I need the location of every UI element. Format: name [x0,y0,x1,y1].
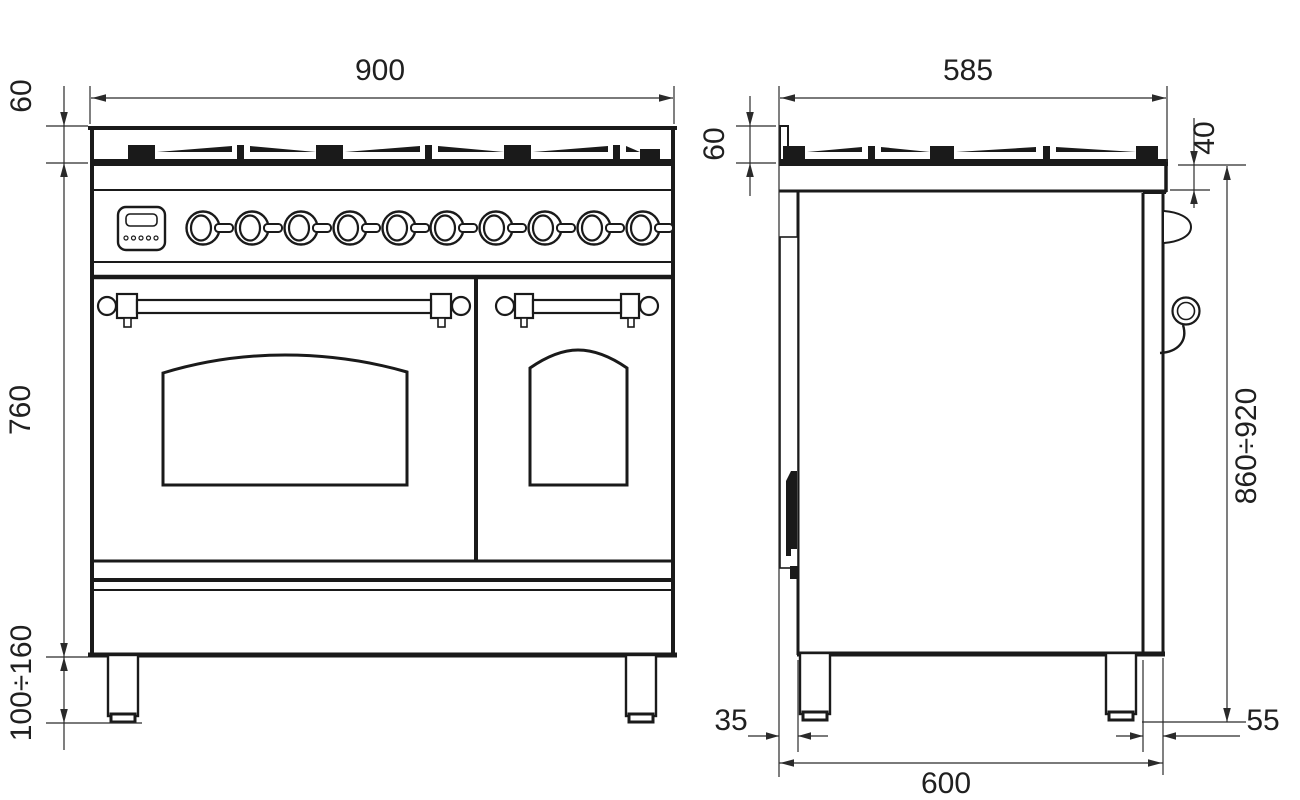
knob-7 [480,212,527,245]
dim-side-top-height: 60 [698,96,776,196]
dim-side-depth: 585 [779,54,1167,162]
dim-worktop-edge: 40 [1170,118,1246,208]
dim-overall-height-label: 860÷920 [1230,388,1263,505]
technical-drawing: 900 60 760 100÷160 [0,0,1300,800]
drawing-svg: 900 60 760 100÷160 [0,0,1300,800]
side-front-leg [1106,653,1136,720]
knob-1 [187,212,234,245]
burner-knobs [187,212,674,245]
dim-worktop-edge-label: 40 [1188,121,1221,154]
front-legs [108,655,656,722]
dim-front-leg-height-label: 100÷160 [5,625,38,742]
dim-front-offset: 55 [1116,660,1280,752]
side-cooktop-profile [779,146,1168,166]
left-oven-door [98,294,470,485]
side-knob-profile [1164,211,1191,243]
side-legs [800,653,1136,720]
dim-front-body-height: 760 [4,385,88,657]
side-view [779,126,1200,720]
control-panel [118,207,673,250]
dim-side-depth-label: 585 [943,54,993,87]
dim-rear-offset-label: 35 [714,704,747,737]
dim-front-width: 900 [90,54,674,124]
knob-10 [627,212,674,245]
side-rear-leg [800,653,830,720]
right-door-handle [496,294,658,327]
knob-3 [285,212,332,245]
right-door-window [530,350,627,485]
front-view [88,126,677,722]
front-left-leg [108,655,138,722]
knob-8 [529,212,576,245]
left-door-handle [98,294,470,327]
side-outline [779,126,1167,655]
knob-5 [383,212,430,245]
front-outline [88,126,677,657]
dim-overall-height: 860÷920 [1142,166,1263,722]
knob-4 [334,212,381,245]
side-front-details [1160,211,1200,353]
knob-6 [431,212,478,245]
rear-panel [780,237,799,579]
knob-9 [578,212,625,245]
side-handle-knob [1173,298,1200,325]
timer-display [118,207,165,250]
knob-2 [236,212,283,245]
front-cooktop-profile [94,145,671,166]
gas-connection [786,471,797,556]
front-right-leg [626,655,656,722]
dim-base-depth-label: 600 [921,767,971,800]
dim-front-offset-label: 55 [1246,704,1279,737]
left-door-window [163,355,407,485]
right-oven-door [496,294,658,485]
dim-front-top-height-label: 60 [5,79,38,112]
dim-front-body-height-label: 760 [4,385,37,435]
dim-front-width-label: 900 [355,54,405,87]
dim-side-top-height-label: 60 [698,127,731,160]
